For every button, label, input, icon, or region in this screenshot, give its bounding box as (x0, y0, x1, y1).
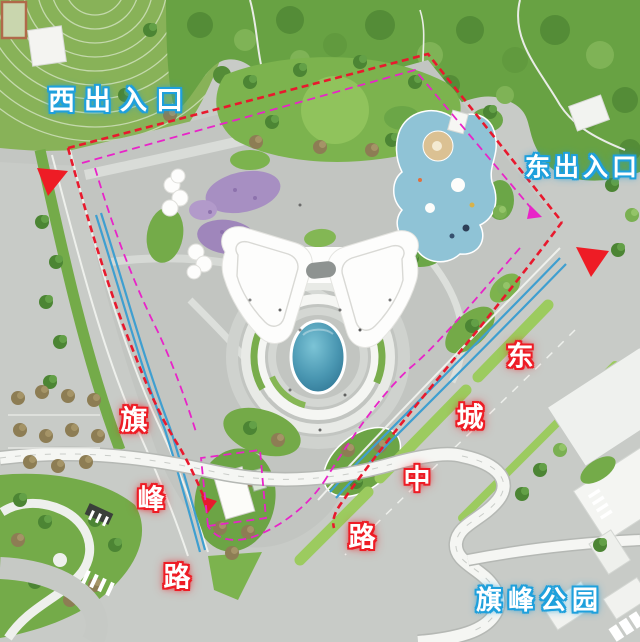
small-building-nw (28, 26, 67, 66)
label-east-entrance: 东出入口 (525, 156, 640, 181)
label-qifeng-road-char: 旗 (121, 408, 148, 435)
label-dongcheng-road-char: 中 (404, 467, 431, 494)
label-qifeng-park: 旗峰公园 (476, 587, 604, 613)
label-dongcheng-road-char: 路 (349, 525, 376, 552)
label-dongcheng-road-char: 城 (457, 405, 484, 432)
court-building (2, 2, 26, 38)
label-qifeng-road-char: 峰 (138, 487, 165, 514)
label-west-entrance: 西出入口 (48, 88, 192, 115)
label-dongcheng-road-char: 东 (507, 344, 534, 371)
label-qifeng-road-char: 路 (164, 565, 191, 592)
pond (291, 321, 345, 393)
site-plan: 西出入口 东出入口 旗峰公园 旗 峰 路 东 城 中 路 (0, 0, 640, 642)
